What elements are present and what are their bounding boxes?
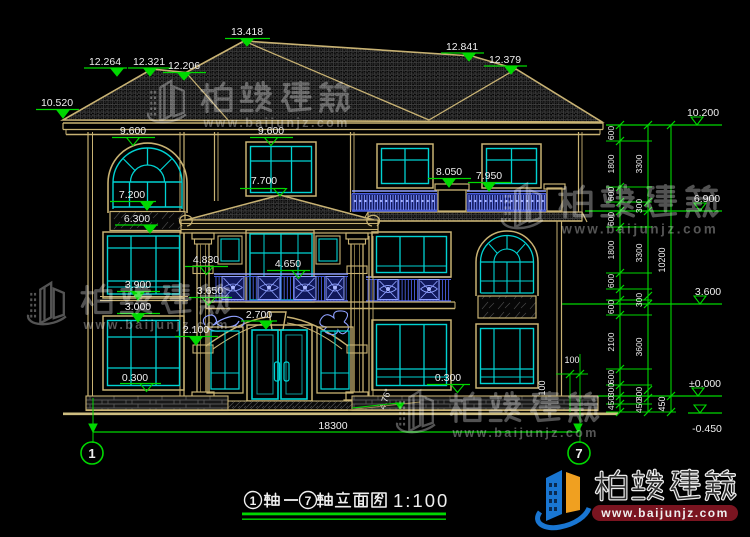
svg-text:1800: 1800 — [606, 154, 616, 173]
svg-text:www.baijunjz.com: www.baijunjz.com — [451, 426, 598, 440]
svg-text:300: 300 — [634, 199, 644, 213]
svg-text:18300: 18300 — [318, 420, 347, 432]
svg-text:±0.000: ±0.000 — [689, 378, 721, 390]
svg-text:600: 600 — [606, 126, 616, 140]
svg-text:www.baijunjz.com: www.baijunjz.com — [202, 116, 349, 130]
svg-text:600: 600 — [606, 274, 616, 288]
svg-text:300: 300 — [606, 383, 616, 397]
svg-text:12.841: 12.841 — [446, 41, 478, 53]
svg-text:2.700: 2.700 — [246, 309, 272, 321]
svg-text:7.950: 7.950 — [476, 170, 502, 182]
svg-text:450: 450 — [657, 396, 667, 411]
svg-text:7: 7 — [305, 494, 312, 508]
svg-text:0.300: 0.300 — [435, 372, 461, 384]
svg-text:7.700: 7.700 — [251, 175, 277, 187]
svg-text:3600: 3600 — [634, 337, 644, 356]
svg-text:12.321: 12.321 — [133, 56, 165, 68]
svg-text:300: 300 — [634, 293, 644, 307]
svg-text:12.206: 12.206 — [168, 60, 200, 72]
svg-text:1:100: 1:100 — [393, 490, 449, 511]
svg-text:12.264: 12.264 — [89, 56, 121, 68]
svg-text:10200: 10200 — [657, 247, 667, 272]
svg-text:600: 600 — [606, 370, 616, 384]
svg-text:3300: 3300 — [634, 243, 644, 262]
svg-text:600: 600 — [606, 300, 616, 314]
svg-text:8.050: 8.050 — [436, 166, 462, 178]
svg-text:1800: 1800 — [606, 240, 616, 259]
svg-text:1: 1 — [88, 446, 95, 461]
svg-text:100: 100 — [564, 355, 579, 365]
svg-text:www.baijunjz.com: www.baijunjz.com — [82, 318, 229, 332]
svg-text:7: 7 — [575, 446, 582, 461]
svg-text:10.520: 10.520 — [41, 97, 73, 109]
svg-text:www.baijunjz.com: www.baijunjz.com — [560, 221, 718, 236]
svg-text:450: 450 — [606, 396, 616, 410]
svg-text:0.300: 0.300 — [122, 372, 148, 384]
svg-text:1: 1 — [250, 494, 257, 508]
svg-text:3300: 3300 — [634, 154, 644, 173]
svg-text:www.baijunjz.com: www.baijunjz.com — [600, 506, 729, 520]
svg-text:450: 450 — [634, 399, 644, 413]
svg-text:7.200: 7.200 — [119, 189, 145, 201]
svg-text:4.650: 4.650 — [275, 258, 301, 270]
svg-text:3.600: 3.600 — [695, 286, 721, 298]
svg-text:13.418: 13.418 — [231, 26, 263, 38]
svg-text:10.200: 10.200 — [687, 107, 719, 119]
svg-text:9.600: 9.600 — [120, 125, 146, 137]
svg-text:12.379: 12.379 — [489, 54, 521, 66]
svg-text:6.300: 6.300 — [124, 213, 150, 225]
svg-text:2100: 2100 — [606, 332, 616, 351]
svg-text:4.830: 4.830 — [193, 254, 219, 266]
svg-text:-0.450: -0.450 — [692, 423, 722, 435]
